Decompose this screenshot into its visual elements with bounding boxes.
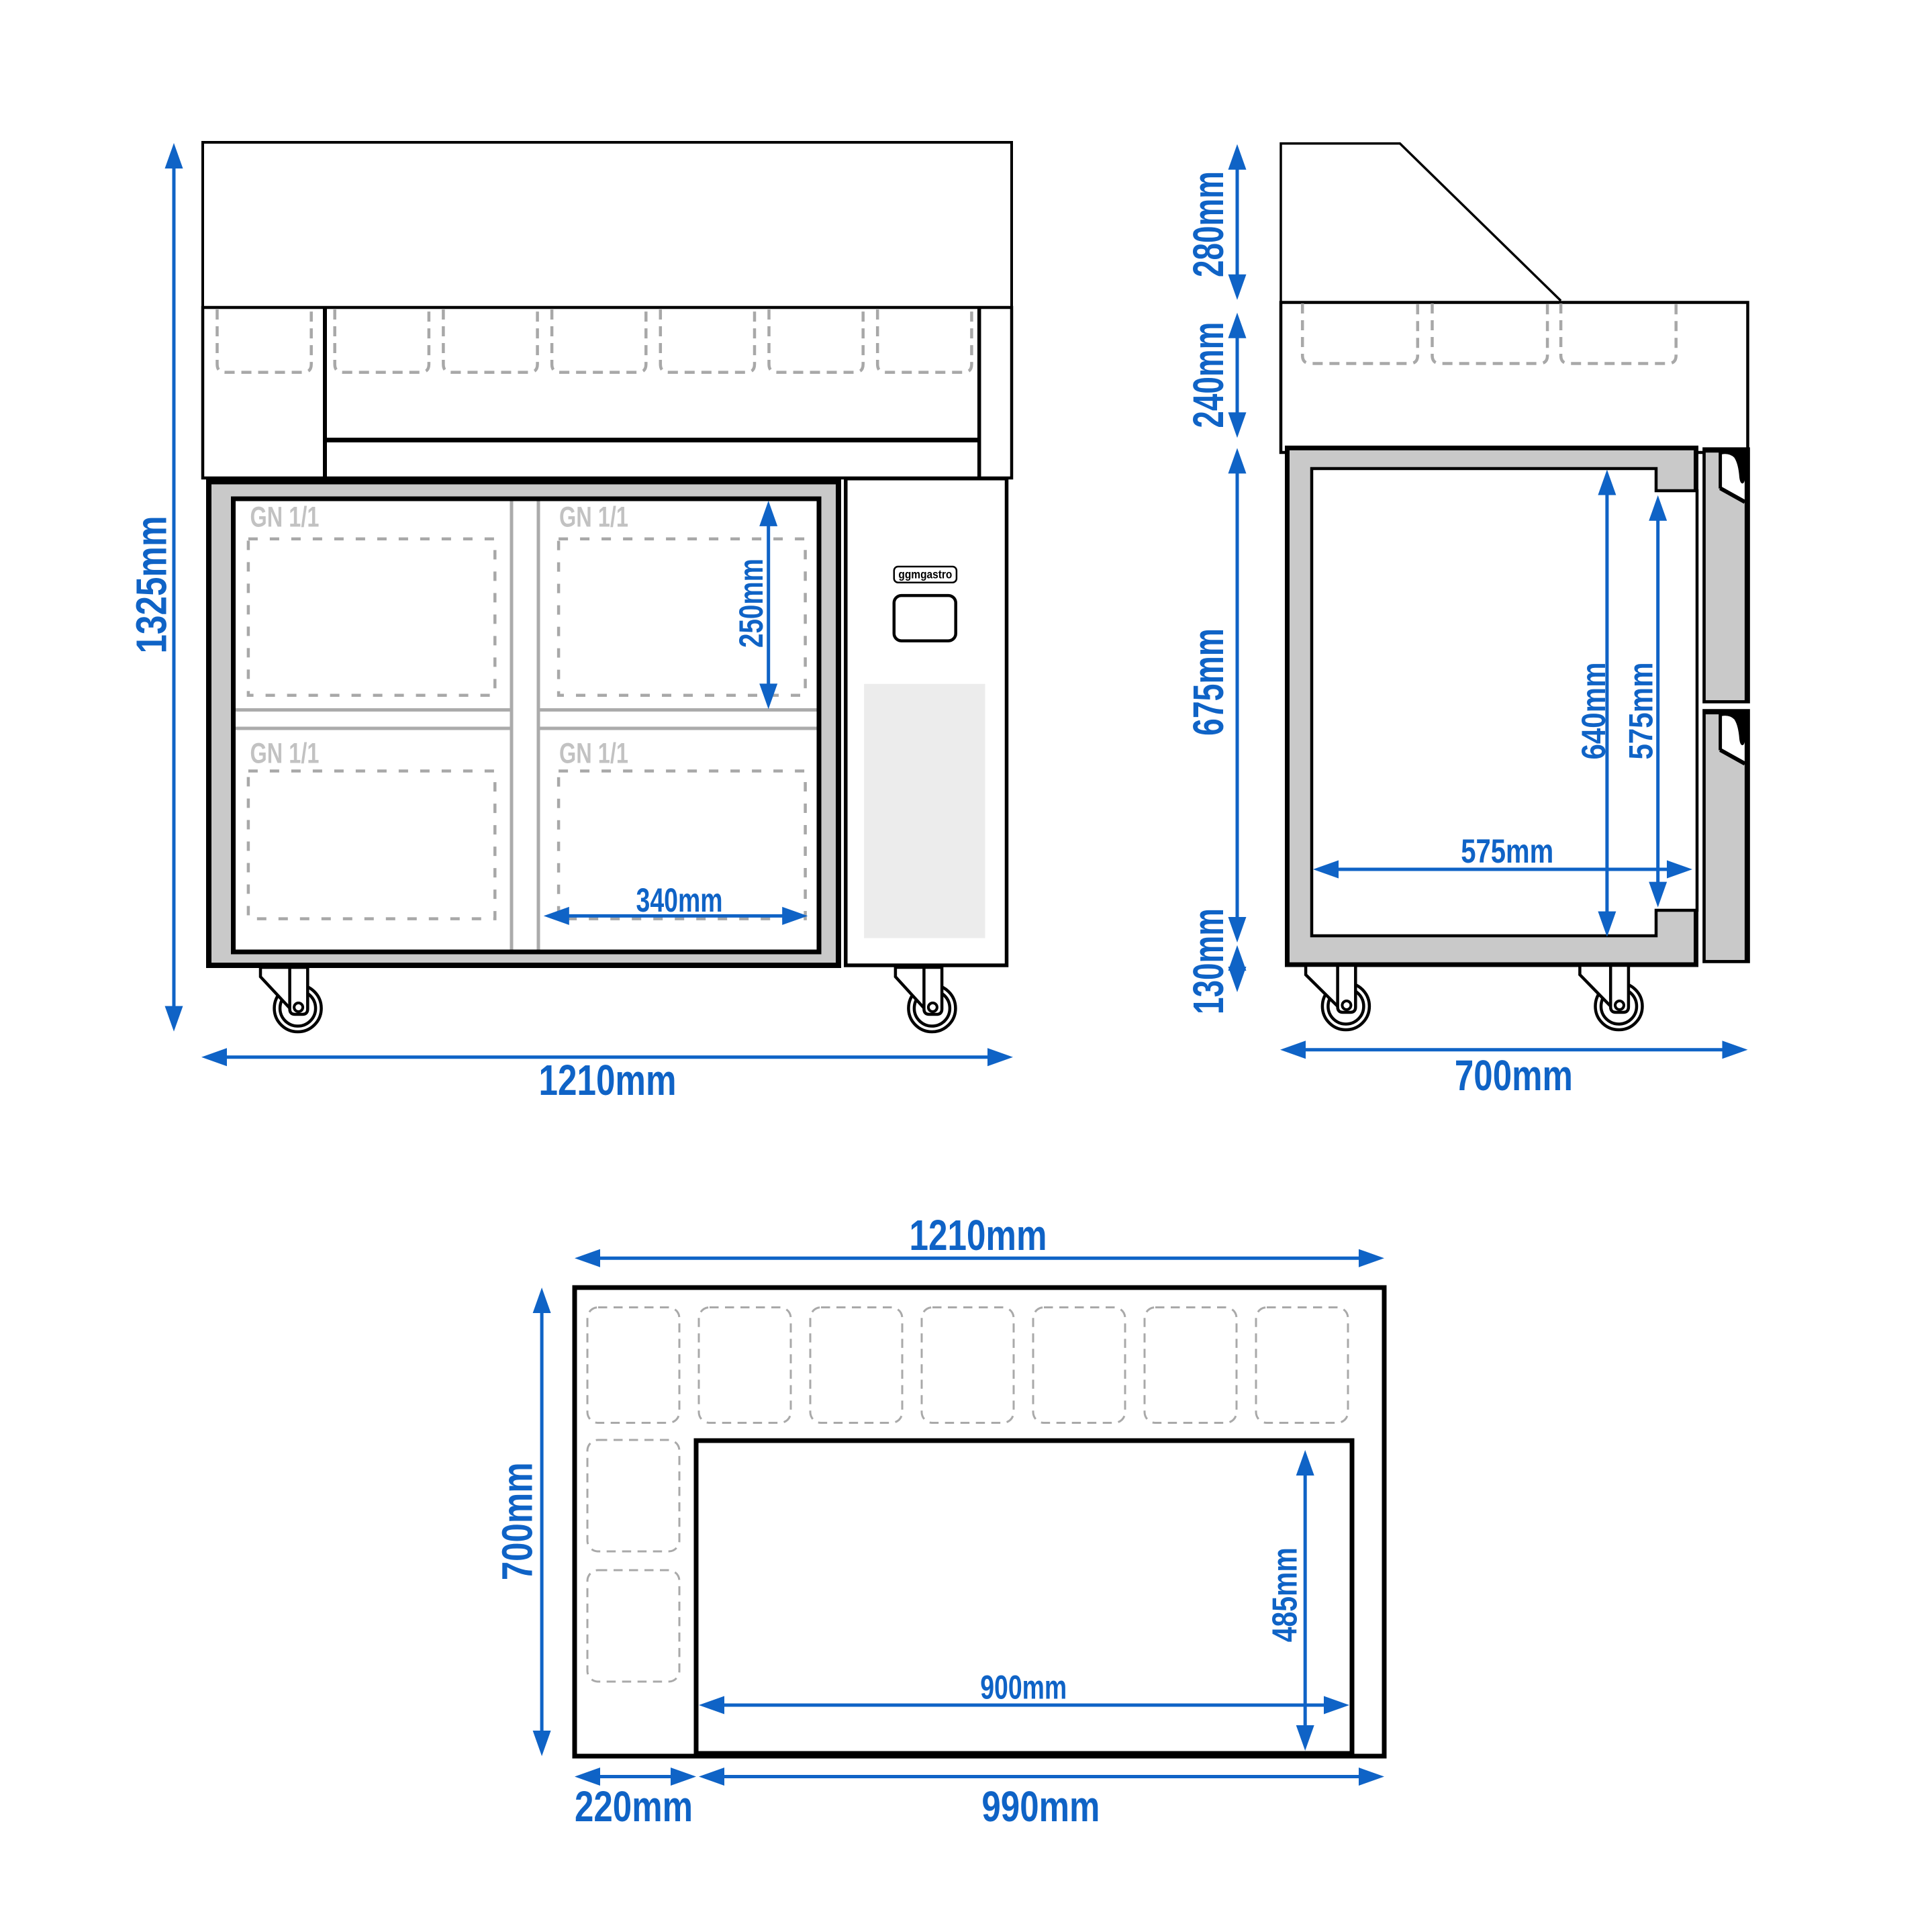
svg-text:1210mm: 1210mm xyxy=(910,1211,1047,1259)
svg-text:GN 1/1: GN 1/1 xyxy=(559,501,628,534)
svg-text:700mm: 700mm xyxy=(493,1462,541,1580)
svg-text:GN 1/1: GN 1/1 xyxy=(250,738,320,770)
svg-text:220mm: 220mm xyxy=(575,1782,693,1831)
svg-text:1325mm: 1325mm xyxy=(128,516,176,654)
svg-text:675mm: 675mm xyxy=(1184,628,1233,736)
svg-text:575mm: 575mm xyxy=(1622,663,1659,760)
svg-text:GN 1/1: GN 1/1 xyxy=(250,501,320,534)
svg-text:900mm: 900mm xyxy=(980,1669,1067,1706)
svg-text:130mm: 130mm xyxy=(1184,908,1233,1014)
svg-text:240mm: 240mm xyxy=(1184,322,1233,428)
svg-text:ggmgastro: ggmgastro xyxy=(898,568,952,581)
svg-text:250mm: 250mm xyxy=(732,559,770,648)
svg-text:280mm: 280mm xyxy=(1184,171,1233,277)
svg-text:990mm: 990mm xyxy=(981,1782,1100,1831)
svg-text:575mm: 575mm xyxy=(1461,832,1553,870)
svg-text:700mm: 700mm xyxy=(1455,1051,1573,1100)
svg-text:485mm: 485mm xyxy=(1266,1547,1305,1642)
svg-text:1210mm: 1210mm xyxy=(539,1056,677,1104)
svg-text:340mm: 340mm xyxy=(636,881,723,919)
svg-text:GN 1/1: GN 1/1 xyxy=(559,738,628,770)
svg-text:640mm: 640mm xyxy=(1575,663,1612,760)
